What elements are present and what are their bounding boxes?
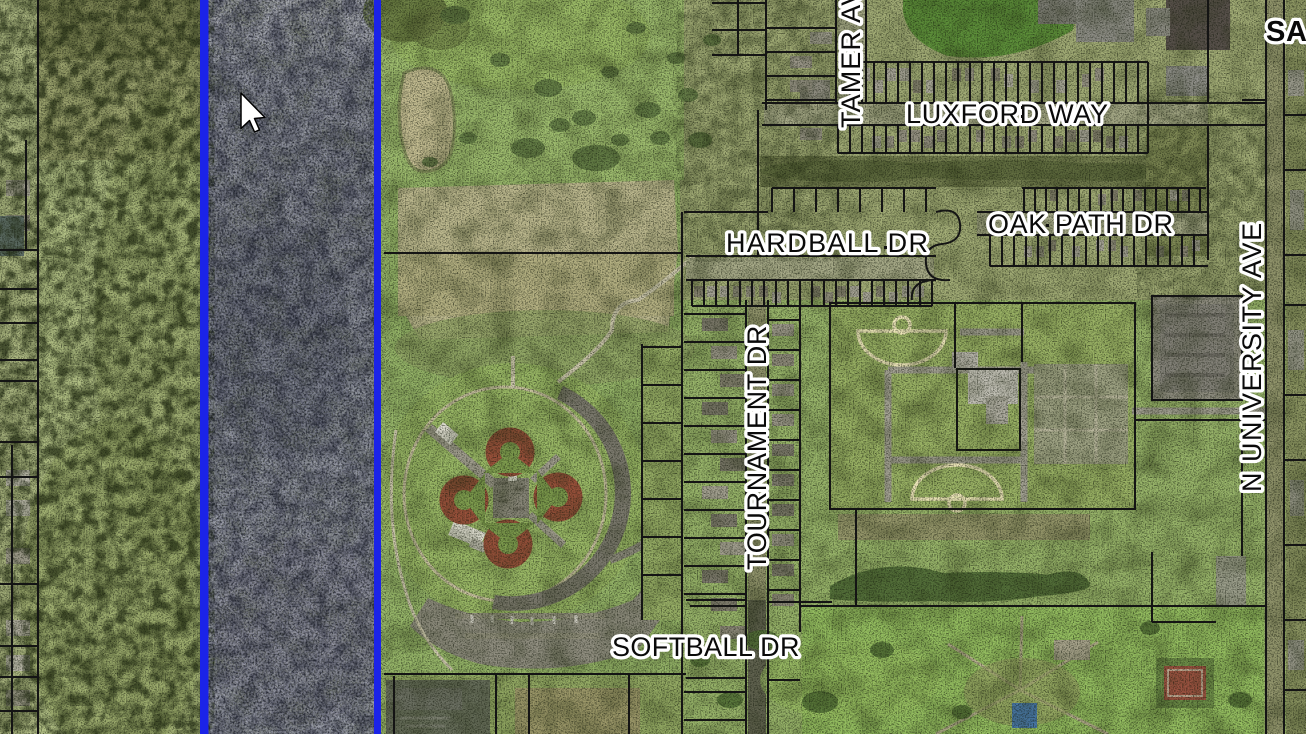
svg-text:SA: SA xyxy=(1266,16,1306,48)
svg-text:LUXFORD WAY: LUXFORD WAY xyxy=(906,99,1109,129)
svg-text:N UNIVERSITY AVE: N UNIVERSITY AVE xyxy=(1237,221,1267,492)
svg-text:OAK PATH DR: OAK PATH DR xyxy=(988,209,1174,239)
svg-text:SOFTBALL DR: SOFTBALL DR xyxy=(612,632,800,662)
svg-text:TOURNAMENT DR: TOURNAMENT DR xyxy=(742,325,772,570)
svg-text:TAMER AVE: TAMER AVE xyxy=(836,0,866,128)
svg-text:HARDBALL DR: HARDBALL DR xyxy=(726,228,929,258)
